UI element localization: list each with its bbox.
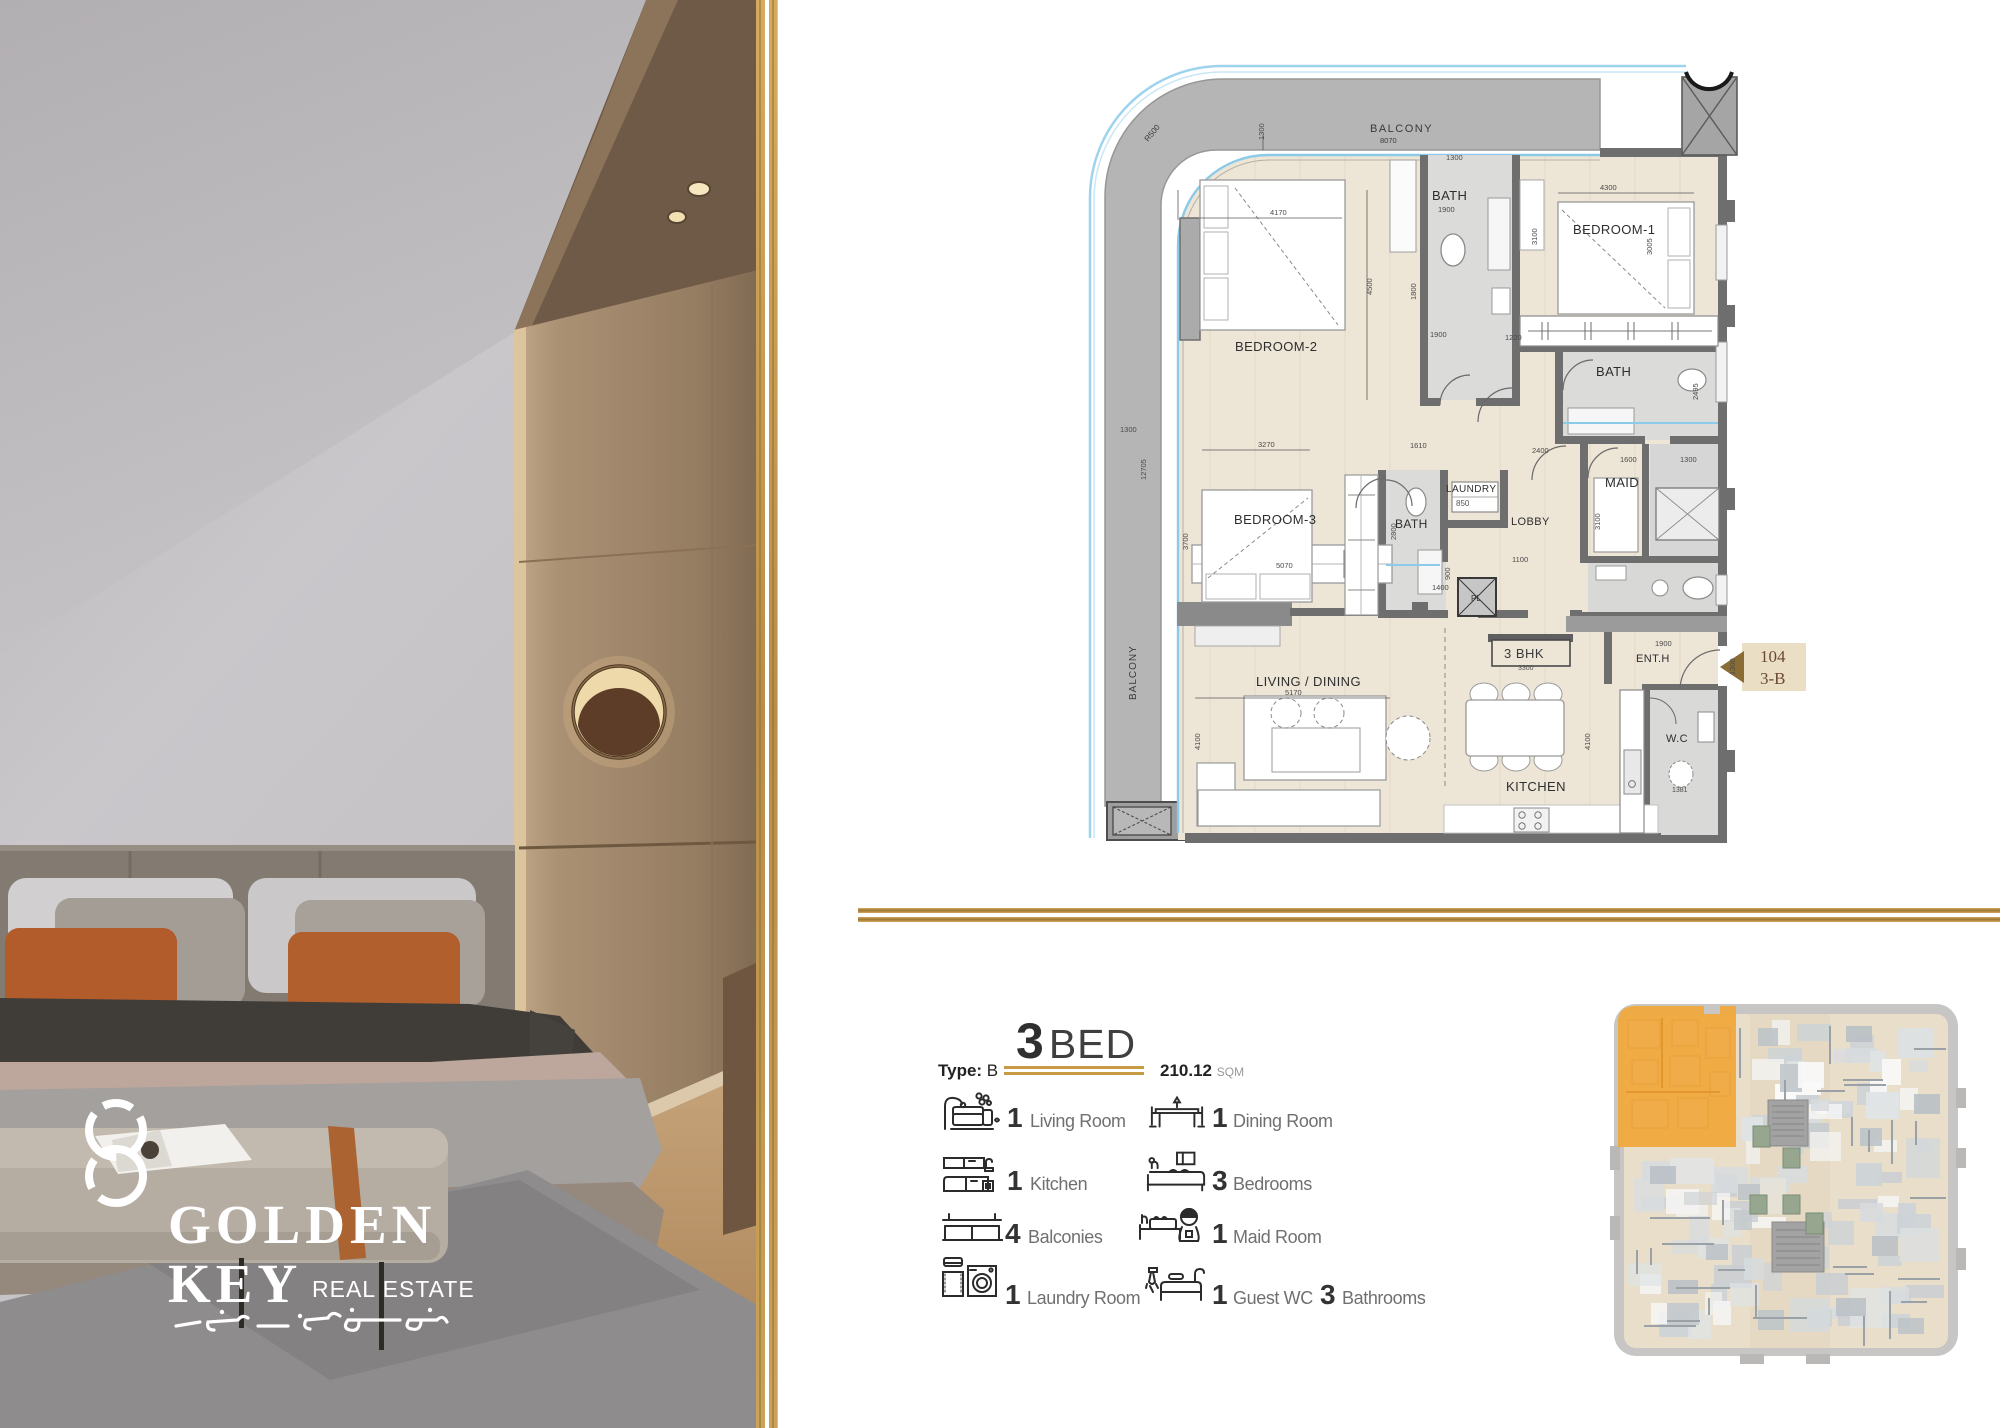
svg-text:1610: 1610 (1410, 441, 1427, 450)
svg-text:BALCONY: BALCONY (1370, 123, 1433, 135)
svg-text:4100: 4100 (1193, 733, 1202, 750)
svg-text:1800: 1800 (1409, 283, 1418, 300)
svg-text:3100: 3100 (1530, 228, 1539, 245)
svg-text:LOBBY: LOBBY (1511, 516, 1550, 528)
svg-text:PL: PL (1471, 594, 1481, 603)
svg-text:1600: 1600 (1620, 455, 1637, 464)
svg-text:1300: 1300 (1120, 425, 1137, 434)
svg-text:BEDROOM-2: BEDROOM-2 (1235, 339, 1317, 354)
svg-text:3-B: 3-B (1760, 669, 1786, 688)
svg-text:1900: 1900 (1430, 330, 1447, 339)
svg-text:LIVING / DINING: LIVING / DINING (1256, 674, 1361, 689)
svg-text:2495: 2495 (1691, 383, 1700, 400)
svg-text:4500: 4500 (1365, 278, 1374, 295)
svg-text:MAID: MAID (1605, 475, 1639, 490)
svg-text:REAL ESTATE: REAL ESTATE (312, 1276, 475, 1302)
svg-text:LAUNDRY: LAUNDRY (1446, 484, 1496, 495)
svg-text:3700: 3700 (1181, 533, 1190, 550)
svg-text:ENT.H: ENT.H (1636, 653, 1670, 665)
svg-text:BATH: BATH (1395, 517, 1428, 531)
svg-text:2400: 2400 (1532, 446, 1549, 455)
svg-text:1300: 1300 (1728, 658, 1737, 675)
svg-text:1400: 1400 (1432, 583, 1449, 592)
svg-text:1300: 1300 (1446, 153, 1463, 162)
svg-text:3300: 3300 (1518, 665, 1534, 672)
svg-text:GOLDEN: GOLDEN (168, 1194, 436, 1255)
svg-text:KITCHEN: KITCHEN (1506, 779, 1566, 794)
svg-text:BATH: BATH (1596, 364, 1631, 379)
svg-text:3100: 3100 (1593, 513, 1602, 530)
svg-text:BALCONY: BALCONY (1128, 645, 1139, 700)
svg-text:1900: 1900 (1438, 205, 1455, 214)
svg-text:3005: 3005 (1645, 238, 1654, 255)
svg-text:5070: 5070 (1276, 561, 1293, 570)
svg-text:W.C: W.C (1666, 733, 1688, 745)
svg-text:3270: 3270 (1258, 440, 1275, 449)
svg-text:KEY: KEY (168, 1253, 302, 1314)
svg-text:1300: 1300 (1680, 455, 1697, 464)
svg-text:5170: 5170 (1285, 688, 1302, 697)
svg-text:1900: 1900 (1655, 639, 1672, 648)
svg-text:8070: 8070 (1380, 136, 1397, 145)
svg-text:BEDROOM-3: BEDROOM-3 (1234, 512, 1316, 527)
svg-text:4170: 4170 (1270, 208, 1287, 217)
svg-text:4100: 4100 (1583, 733, 1592, 750)
svg-text:2800: 2800 (1389, 523, 1398, 540)
svg-text:850: 850 (1456, 499, 1470, 508)
svg-text:4300: 4300 (1600, 183, 1617, 192)
svg-text:1220: 1220 (1505, 333, 1522, 342)
svg-text:1300: 1300 (1257, 123, 1266, 140)
svg-text:1381: 1381 (1672, 787, 1688, 794)
svg-text:3 BHK: 3 BHK (1504, 646, 1544, 661)
svg-text:1100: 1100 (1512, 555, 1528, 564)
svg-text:BEDROOM-1: BEDROOM-1 (1573, 222, 1655, 237)
svg-text:BATH: BATH (1432, 188, 1467, 203)
svg-text:900: 900 (1443, 567, 1452, 580)
svg-text:12705: 12705 (1139, 459, 1148, 480)
svg-text:104: 104 (1760, 647, 1786, 666)
